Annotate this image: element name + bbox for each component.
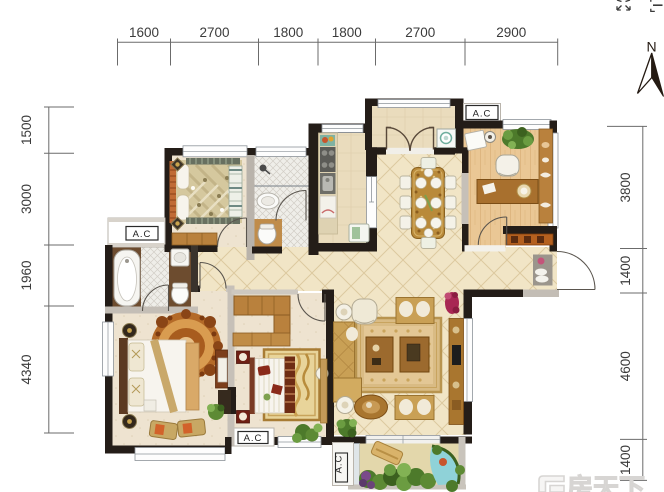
svg-text:2900: 2900 — [496, 25, 526, 40]
svg-text:A.C: A.C — [244, 433, 263, 444]
svg-text:A.C: A.C — [334, 455, 345, 474]
svg-text:3800: 3800 — [618, 172, 633, 202]
svg-text:N: N — [646, 39, 656, 55]
svg-text:1960: 1960 — [19, 260, 34, 290]
svg-text:1800: 1800 — [332, 25, 362, 40]
svg-text:A.C: A.C — [133, 229, 152, 240]
svg-text:2700: 2700 — [199, 25, 229, 40]
svg-text:1400: 1400 — [618, 256, 633, 286]
svg-text:房天下: 房天下 — [567, 473, 645, 492]
svg-text:A.C: A.C — [473, 109, 492, 120]
svg-text:2700: 2700 — [405, 25, 435, 40]
svg-text:1400: 1400 — [618, 445, 633, 475]
svg-text:4340: 4340 — [19, 354, 34, 384]
svg-text:1800: 1800 — [273, 25, 303, 40]
svg-text:1600: 1600 — [129, 25, 159, 40]
svg-text:3000: 3000 — [19, 184, 34, 214]
svg-text:1500: 1500 — [19, 115, 34, 145]
svg-text:4600: 4600 — [618, 351, 633, 381]
